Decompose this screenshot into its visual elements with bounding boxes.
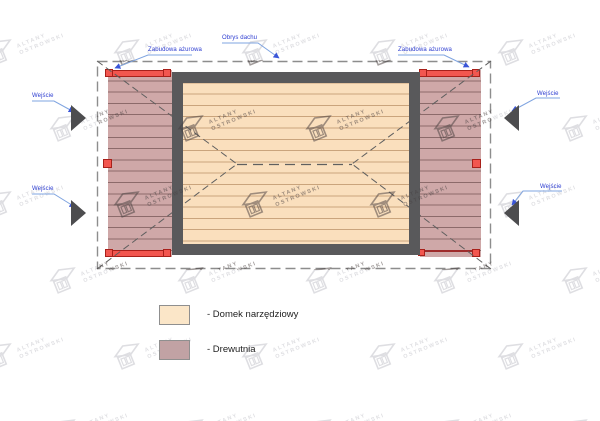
leader-entrance-l2	[32, 194, 75, 207]
post	[105, 249, 113, 257]
label-roof-outline: Obrys dachu	[222, 35, 257, 41]
gazebo-logo-icon	[110, 35, 147, 68]
label-entrance-left-2: Wejście	[32, 186, 54, 192]
gazebo-logo-icon	[494, 35, 531, 68]
gazebo-logo-icon	[46, 263, 83, 296]
legend-swatch-tool-shed	[159, 305, 190, 325]
gazebo-logo-icon	[430, 415, 467, 421]
watermark-text: ALTANYOSTROWSKI	[592, 254, 600, 285]
gazebo-logo-icon	[558, 263, 595, 296]
watermark-logo: ALTANYOSTROWSKI	[238, 16, 322, 69]
watermark-logo: ALTANYOSTROWSKI	[430, 396, 514, 421]
watermark-text: ALTANYOSTROWSKI	[208, 406, 258, 421]
gazebo-logo-icon	[302, 263, 339, 296]
gazebo-logo-icon	[302, 415, 339, 421]
label-entrance-right-2: Wejście	[540, 184, 562, 190]
watermark-text: ALTANYOSTROWSKI	[208, 254, 258, 285]
post	[105, 69, 113, 77]
watermark-logo: ALTANYOSTROWSKI	[0, 396, 2, 421]
watermark-text: ALTANYOSTROWSKI	[528, 178, 578, 209]
legend-label-tool-shed: - Domek narzędziowy	[207, 309, 298, 320]
watermark-logo: ALTANYOSTROWSKI	[558, 244, 600, 297]
legend-swatch-woodshed	[159, 340, 190, 360]
gazebo-logo-icon	[366, 339, 403, 372]
watermark-text: ALTANYOSTROWSKI	[208, 406, 258, 421]
watermark-logo: ALTANYOSTROWSKI	[558, 396, 600, 421]
watermark-logo: ALTANYOSTROWSKI	[366, 320, 450, 373]
watermark-logo: ALTANYOSTROWSKI	[174, 396, 258, 421]
gazebo-logo-icon	[430, 263, 467, 296]
watermark-text: ALTANYOSTROWSKI	[336, 406, 386, 421]
watermark-text: ALTANYOSTROWSKI	[80, 406, 130, 421]
watermark-text: ALTANYOSTROWSKI	[0, 102, 2, 133]
watermark-text: ALTANYOSTROWSKI	[400, 330, 450, 361]
watermark-logo: ALTANYOSTROWSKI	[366, 320, 450, 373]
post	[419, 69, 427, 77]
gazebo-logo-icon	[430, 415, 467, 421]
gazebo-logo-icon	[558, 111, 595, 144]
watermark-logo: ALTANYOSTROWSKI	[0, 244, 2, 297]
watermark-logo: ALTANYOSTROWSKI	[174, 396, 258, 421]
entrance-arrow-icon	[504, 200, 519, 226]
gazebo-logo-icon	[366, 339, 403, 372]
watermark-text: ALTANYOSTROWSKI	[16, 178, 66, 209]
leader-roof-outline	[222, 43, 279, 58]
post-mid-right	[472, 159, 481, 168]
gazebo-logo-icon	[494, 339, 531, 372]
watermark-logo: ALTANYOSTROWSKI	[0, 244, 2, 297]
entrance-arrow-icon	[71, 200, 86, 226]
gazebo-logo-icon	[430, 263, 467, 296]
watermark-text: ALTANYOSTROWSKI	[0, 254, 2, 285]
watermark-logo: ALTANYOSTROWSKI	[0, 16, 66, 69]
watermark-text: ALTANYOSTROWSKI	[464, 254, 514, 285]
watermark-text: ALTANYOSTROWSKI	[16, 178, 66, 209]
post-mid-left	[103, 159, 112, 168]
watermark-text: ALTANYOSTROWSKI	[208, 254, 258, 285]
lattice-panel-top-right	[421, 70, 479, 77]
watermark-text: ALTANYOSTROWSKI	[592, 254, 600, 285]
watermark-logo: ALTANYOSTROWSKI	[494, 16, 578, 69]
watermark-logo: ALTANYOSTROWSKI	[494, 16, 578, 69]
watermark-text: ALTANYOSTROWSKI	[80, 254, 130, 285]
watermark-text: ALTANYOSTROWSKI	[0, 406, 2, 421]
label-lattice-right: Zabudowa ażurowa	[398, 47, 452, 53]
leader-lattice-right	[398, 55, 469, 67]
post	[163, 69, 171, 77]
watermark-logo: ALTANYOSTROWSKI	[0, 168, 66, 221]
lattice-panel-top-left	[109, 70, 170, 77]
gazebo-logo-icon	[46, 263, 83, 296]
entrance-arrow-icon	[71, 105, 86, 131]
gazebo-logo-icon	[302, 263, 339, 296]
watermark-text: ALTANYOSTROWSKI	[592, 102, 600, 133]
watermark-text: ALTANYOSTROWSKI	[272, 330, 322, 361]
watermark-text: ALTANYOSTROWSKI	[400, 330, 450, 361]
watermark-text: ALTANYOSTROWSKI	[0, 102, 2, 133]
watermark-text: ALTANYOSTROWSKI	[336, 254, 386, 285]
leader-lattice-left	[115, 55, 192, 68]
watermark-logo: ALTANYOSTROWSKI	[0, 92, 2, 145]
watermark-text: ALTANYOSTROWSKI	[464, 254, 514, 285]
post	[472, 69, 480, 77]
watermark-text: ALTANYOSTROWSKI	[80, 406, 130, 421]
leader-entrance-r1	[512, 98, 560, 111]
watermark-logo: ALTANYOSTROWSKI	[46, 396, 130, 421]
gazebo-logo-icon	[174, 263, 211, 296]
watermark-text: ALTANYOSTROWSKI	[528, 26, 578, 57]
watermark-logo: ALTANYOSTROWSKI	[558, 92, 600, 145]
watermark-logo: ALTANYOSTROWSKI	[238, 16, 322, 69]
watermark-text: ALTANYOSTROWSKI	[0, 406, 2, 421]
gazebo-logo-icon	[558, 415, 595, 421]
watermark-text: ALTANYOSTROWSKI	[272, 330, 322, 361]
lattice-panel-bottom-right	[421, 250, 474, 252]
watermark-logo: ALTANYOSTROWSKI	[0, 92, 2, 145]
drewutnia-left-area	[108, 70, 172, 257]
watermark-logo: ALTANYOSTROWSKI	[110, 16, 194, 69]
watermark-text: ALTANYOSTROWSKI	[0, 254, 2, 285]
watermark-logo: ALTANYOSTROWSKI	[558, 396, 600, 421]
gazebo-logo-icon	[110, 339, 147, 372]
watermark-text: ALTANYOSTROWSKI	[592, 102, 600, 133]
watermark-logo: ALTANYOSTROWSKI	[0, 320, 66, 373]
gazebo-logo-icon	[558, 111, 595, 144]
gazebo-logo-icon	[0, 339, 19, 372]
leader-entrance-r2	[512, 191, 562, 205]
watermark-text: ALTANYOSTROWSKI	[336, 254, 386, 285]
building-walls	[172, 72, 420, 255]
gazebo-logo-icon	[46, 415, 83, 421]
watermark-logo: ALTANYOSTROWSKI	[0, 168, 66, 221]
gazebo-logo-icon	[0, 187, 19, 220]
watermark-text: ALTANYOSTROWSKI	[16, 26, 66, 57]
watermark-text: ALTANYOSTROWSKI	[16, 26, 66, 57]
label-entrance-right-1: Wejście	[537, 91, 559, 97]
watermark-logo: ALTANYOSTROWSKI	[366, 16, 450, 69]
gazebo-logo-icon	[558, 263, 595, 296]
label-entrance-left-1: Wejście	[32, 93, 54, 99]
gazebo-logo-icon	[302, 415, 339, 421]
watermark-logo: ALTANYOSTROWSKI	[494, 320, 578, 373]
watermark-text: ALTANYOSTROWSKI	[528, 26, 578, 57]
gazebo-logo-icon	[174, 415, 211, 421]
gazebo-logo-icon	[174, 263, 211, 296]
watermark-text: ALTANYOSTROWSKI	[528, 330, 578, 361]
leader-entrance-l1	[32, 101, 74, 112]
entrance-arrow-icon	[504, 105, 519, 131]
post	[472, 249, 480, 257]
gazebo-logo-icon	[0, 339, 19, 372]
watermark-logo: ALTANYOSTROWSKI	[0, 396, 2, 421]
gazebo-logo-icon	[0, 35, 19, 68]
watermark-logo: ALTANYOSTROWSKI	[430, 396, 514, 421]
watermark-text: ALTANYOSTROWSKI	[336, 406, 386, 421]
watermark-logo: ALTANYOSTROWSKI	[0, 320, 66, 373]
watermark-text: ALTANYOSTROWSKI	[272, 26, 322, 57]
watermark-text: ALTANYOSTROWSKI	[528, 330, 578, 361]
gazebo-logo-icon	[0, 35, 19, 68]
watermark-text: ALTANYOSTROWSKI	[528, 178, 578, 209]
watermark-logo: ALTANYOSTROWSKI	[110, 16, 194, 69]
watermark-text: ALTANYOSTROWSKI	[592, 406, 600, 421]
watermark-text: ALTANYOSTROWSKI	[464, 406, 514, 421]
watermark-text: ALTANYOSTROWSKI	[16, 330, 66, 361]
watermark-logo: ALTANYOSTROWSKI	[558, 244, 600, 297]
gazebo-logo-icon	[110, 339, 147, 372]
plan-canvas: ALTANYOSTROWSKI ALTANYOSTROWSKI ALTANYOS…	[0, 0, 600, 421]
watermark-logo: ALTANYOSTROWSKI	[302, 396, 386, 421]
watermark-text: ALTANYOSTROWSKI	[272, 26, 322, 57]
gazebo-logo-icon	[174, 415, 211, 421]
label-lattice-left: Zabudowa ażurowa	[148, 47, 202, 53]
watermark-text: ALTANYOSTROWSKI	[16, 330, 66, 361]
gazebo-logo-icon	[0, 187, 19, 220]
watermark-logo: ALTANYOSTROWSKI	[494, 320, 578, 373]
gazebo-logo-icon	[110, 35, 147, 68]
lattice-panel-bottom-left	[109, 250, 170, 257]
watermark-text: ALTANYOSTROWSKI	[464, 406, 514, 421]
watermark-logo: ALTANYOSTROWSKI	[558, 92, 600, 145]
watermark-text: ALTANYOSTROWSKI	[592, 406, 600, 421]
watermark-logo: ALTANYOSTROWSKI	[46, 396, 130, 421]
watermark-logo: ALTANYOSTROWSKI	[366, 16, 450, 69]
watermark-text: ALTANYOSTROWSKI	[80, 254, 130, 285]
watermark-logo: ALTANYOSTROWSKI	[302, 396, 386, 421]
watermark-logo: ALTANYOSTROWSKI	[0, 16, 66, 69]
post	[163, 249, 171, 257]
gazebo-logo-icon	[494, 339, 531, 372]
gazebo-logo-icon	[558, 415, 595, 421]
legend-label-woodshed: - Drewutnia	[207, 344, 256, 355]
gazebo-logo-icon	[46, 415, 83, 421]
gazebo-logo-icon	[494, 35, 531, 68]
